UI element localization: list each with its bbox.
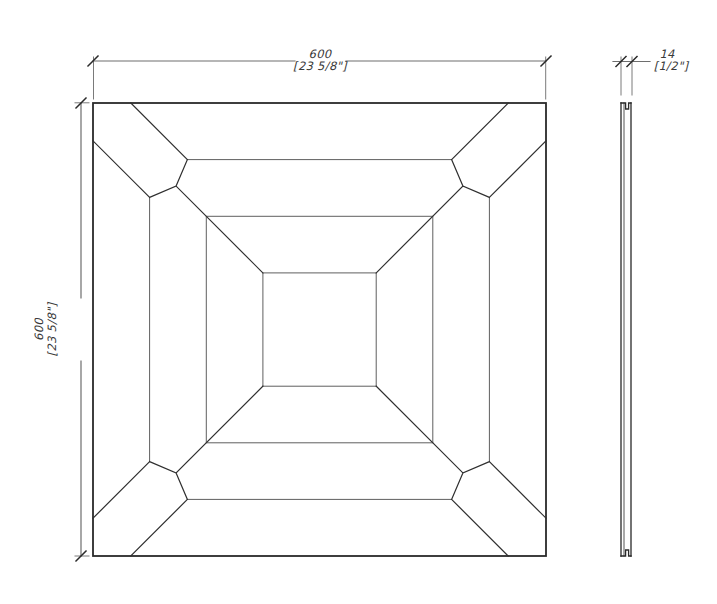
corner-detail-top-right xyxy=(376,103,546,273)
profile-top-groove xyxy=(621,103,631,109)
corner-detail-top-left xyxy=(93,103,263,273)
profile-bottom-groove xyxy=(621,550,631,556)
inner-square xyxy=(263,273,376,386)
height-dimension: 600 [23 5/8"] xyxy=(32,98,90,561)
side-view xyxy=(621,103,631,556)
corner-detail-bottom-right xyxy=(376,386,546,556)
corner-detail-bottom-left xyxy=(93,386,263,556)
thickness-dimension: 14 [1/2"] xyxy=(613,47,689,96)
thickness-imperial-label: [1/2"] xyxy=(654,59,690,73)
height-extension-lines xyxy=(75,103,89,556)
height-imperial-label: [23 5/8"] xyxy=(45,301,59,356)
plan-view xyxy=(93,103,546,556)
width-dimension: 600 [23 5/8"] xyxy=(88,47,551,100)
height-metric-label: 600 xyxy=(32,317,46,341)
technical-drawing: 600 [23 5/8"] 600 [23 5/8"] 14 [1/2"] xyxy=(0,0,717,604)
panel-outline xyxy=(93,103,546,556)
drawing-sheet: 600 [23 5/8"] 600 [23 5/8"] 14 [1/2"] xyxy=(0,0,717,604)
width-imperial-label: [23 5/8"] xyxy=(293,59,348,73)
profile-edges xyxy=(621,103,631,556)
